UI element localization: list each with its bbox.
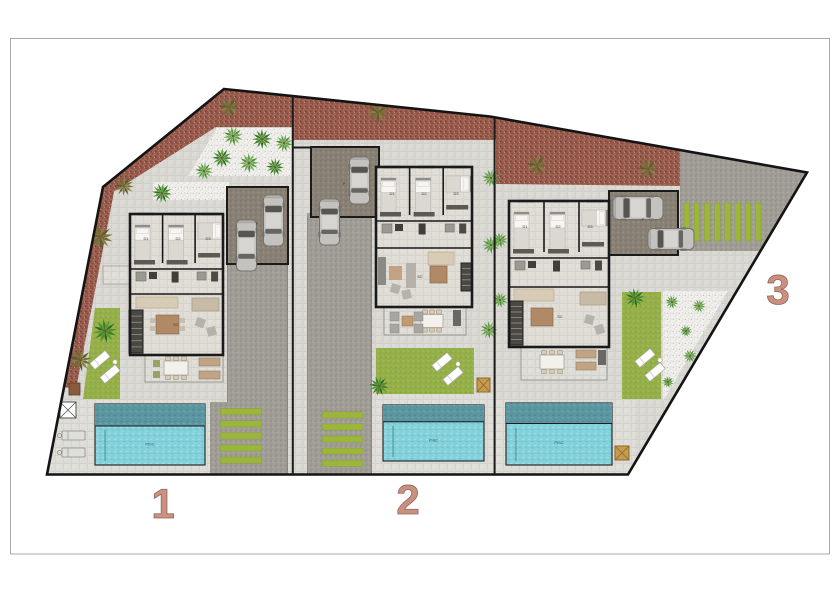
svg-text:PISC: PISC — [429, 437, 438, 442]
svg-text:P: P — [642, 217, 645, 222]
svg-text:P: P — [256, 221, 259, 226]
svg-text:D2: D2 — [421, 191, 427, 196]
svg-text:D2: D2 — [555, 224, 561, 229]
svg-text:SC: SC — [417, 274, 423, 279]
svg-text:D3: D3 — [205, 236, 211, 241]
svg-text:D3: D3 — [453, 191, 459, 196]
svg-text:PISC: PISC — [145, 442, 154, 447]
svg-text:SC: SC — [557, 314, 563, 319]
svg-text:1: 1 — [151, 480, 174, 527]
svg-text:2: 2 — [396, 476, 419, 523]
svg-text:3: 3 — [766, 266, 789, 313]
svg-text:D1: D1 — [389, 191, 395, 196]
svg-text:PISC: PISC — [554, 440, 563, 445]
svg-text:SC: SC — [173, 322, 179, 327]
svg-text:D3: D3 — [587, 224, 593, 229]
svg-text:D2: D2 — [175, 236, 181, 241]
svg-text:P: P — [343, 181, 346, 186]
svg-text:D1: D1 — [522, 224, 528, 229]
svg-text:D1: D1 — [143, 236, 149, 241]
